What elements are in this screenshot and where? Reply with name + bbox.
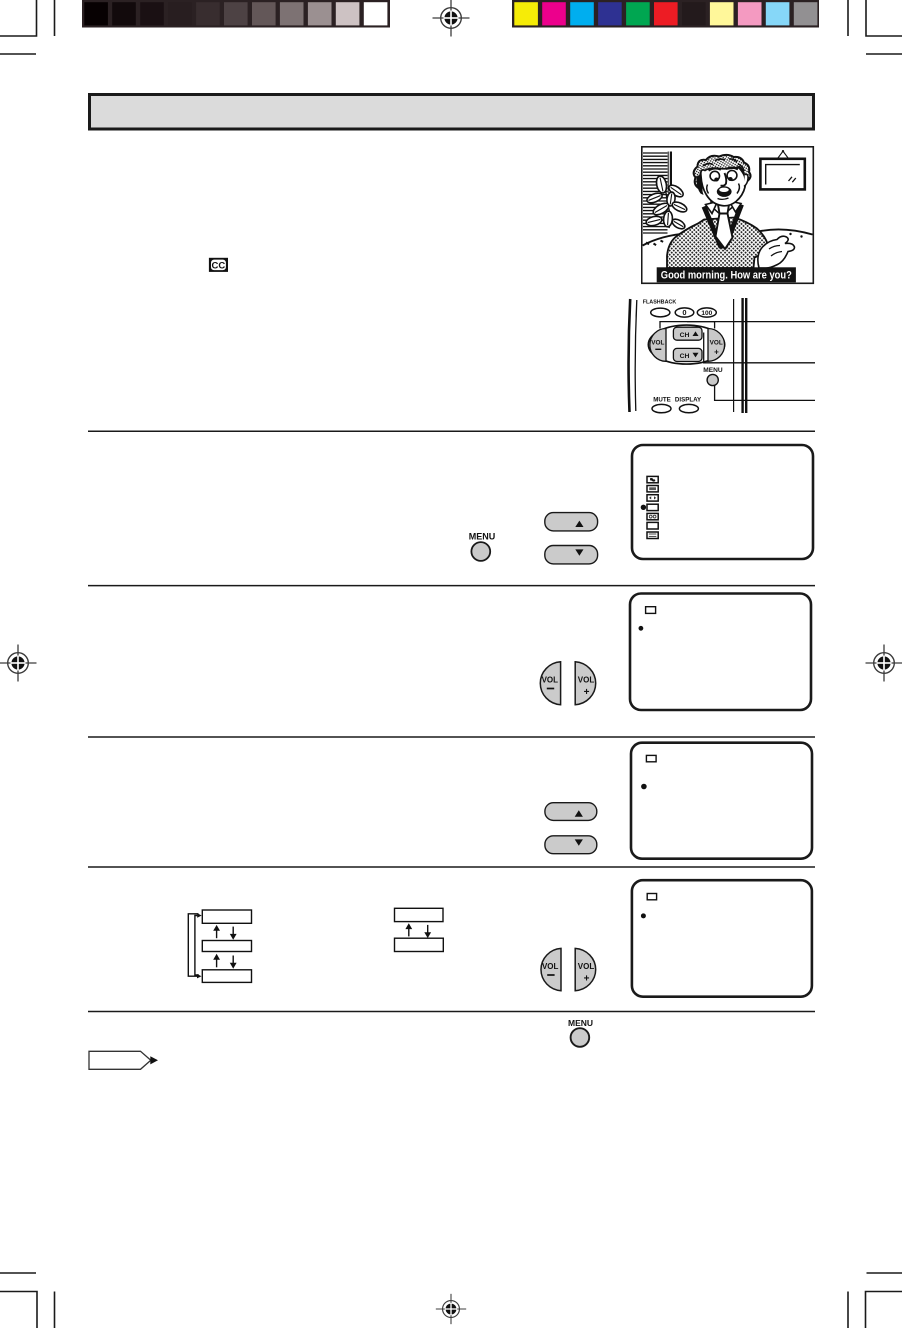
svg-text:CC: CC bbox=[212, 261, 226, 272]
svg-text:0: 0 bbox=[682, 308, 686, 317]
svg-text:Good morning. How are you?: Good morning. How are you? bbox=[661, 269, 792, 281]
svg-text:+: + bbox=[584, 687, 590, 698]
svg-text:VOL: VOL bbox=[578, 676, 595, 685]
svg-text:CH: CH bbox=[680, 332, 690, 339]
svg-text:MENU: MENU bbox=[568, 1018, 593, 1028]
svg-text:VOL: VOL bbox=[710, 340, 723, 347]
svg-text:MENU: MENU bbox=[469, 532, 496, 542]
svg-text:FLASHBACK: FLASHBACK bbox=[643, 300, 677, 306]
svg-text:100: 100 bbox=[701, 310, 712, 317]
svg-text:CH: CH bbox=[680, 353, 690, 360]
svg-text:MENU: MENU bbox=[703, 367, 723, 374]
svg-text:VOL: VOL bbox=[542, 962, 559, 971]
svg-text:VOL: VOL bbox=[651, 340, 664, 347]
svg-text:DISPLAY: DISPLAY bbox=[675, 397, 702, 404]
svg-text:MUTE: MUTE bbox=[653, 397, 671, 404]
svg-text:+: + bbox=[714, 348, 719, 357]
svg-text:VOL: VOL bbox=[578, 962, 595, 971]
svg-text:+: + bbox=[584, 974, 590, 985]
svg-text:VOL: VOL bbox=[542, 676, 559, 685]
